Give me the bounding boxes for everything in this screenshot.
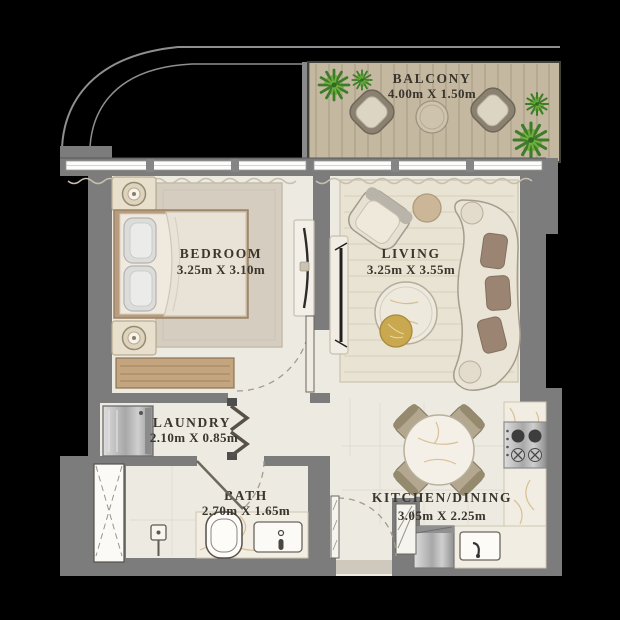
window-mullion	[466, 159, 474, 172]
toilet	[206, 512, 242, 558]
window-mullion	[231, 159, 239, 172]
floor-plan-canvas: BALCONY 4.00m X 1.50m	[0, 0, 620, 620]
wall-left-upper	[88, 176, 112, 393]
mirror-panel	[294, 220, 314, 316]
window-mullion	[391, 159, 399, 172]
side-table	[380, 315, 412, 347]
room-dims-bedroom: 3.25m X 3.10m	[177, 262, 265, 277]
room-label-bedroom: BEDROOM	[180, 246, 262, 261]
balcony-table	[416, 101, 448, 133]
room-label-laundry: LAUNDRY	[153, 415, 231, 430]
washing-machine	[103, 406, 153, 456]
sofa-cushion	[485, 275, 511, 311]
room-dims-kitchen: 3.05m X 2.25m	[398, 508, 486, 523]
wall-laundry-top	[88, 393, 228, 403]
nightstand	[112, 321, 156, 355]
room-label-kitchen: KITCHEN/DINING	[372, 490, 512, 505]
bedroom-door-leaf	[306, 316, 314, 392]
wall-right-lower	[546, 388, 562, 576]
window-mullion	[146, 159, 154, 172]
sofa	[454, 200, 520, 390]
floor-plan-svg: BALCONY 4.00m X 1.50m	[0, 0, 620, 620]
hob	[504, 422, 546, 468]
wall-bedroom-living-divider	[313, 176, 330, 330]
tv-unit	[330, 236, 348, 354]
pouf	[413, 194, 441, 222]
room-dims-balcony: 4.00m X 1.50m	[388, 86, 476, 101]
sofa-pillow	[459, 361, 481, 383]
balcony: BALCONY 4.00m X 1.50m	[302, 62, 560, 162]
room-label-balcony: BALCONY	[393, 71, 472, 86]
dining-table	[391, 402, 486, 497]
wall-bath-east	[308, 456, 330, 568]
nightstand	[112, 177, 156, 211]
sofa-pillow	[461, 202, 483, 224]
wardrobe-bench	[116, 358, 234, 388]
room-label-living: LIVING	[381, 246, 440, 261]
wall-bedroom-door-jamb	[310, 393, 330, 403]
sofa-cushion	[480, 232, 508, 269]
kitchen-sink	[460, 532, 500, 560]
bathroom-sink	[254, 522, 302, 552]
faucet	[279, 539, 284, 550]
room-dims-living: 3.25m X 3.55m	[367, 262, 455, 277]
entry-threshold	[336, 560, 392, 574]
room-dims-laundry: 2.10m X 0.85m	[150, 430, 238, 445]
dishwasher	[414, 526, 454, 568]
